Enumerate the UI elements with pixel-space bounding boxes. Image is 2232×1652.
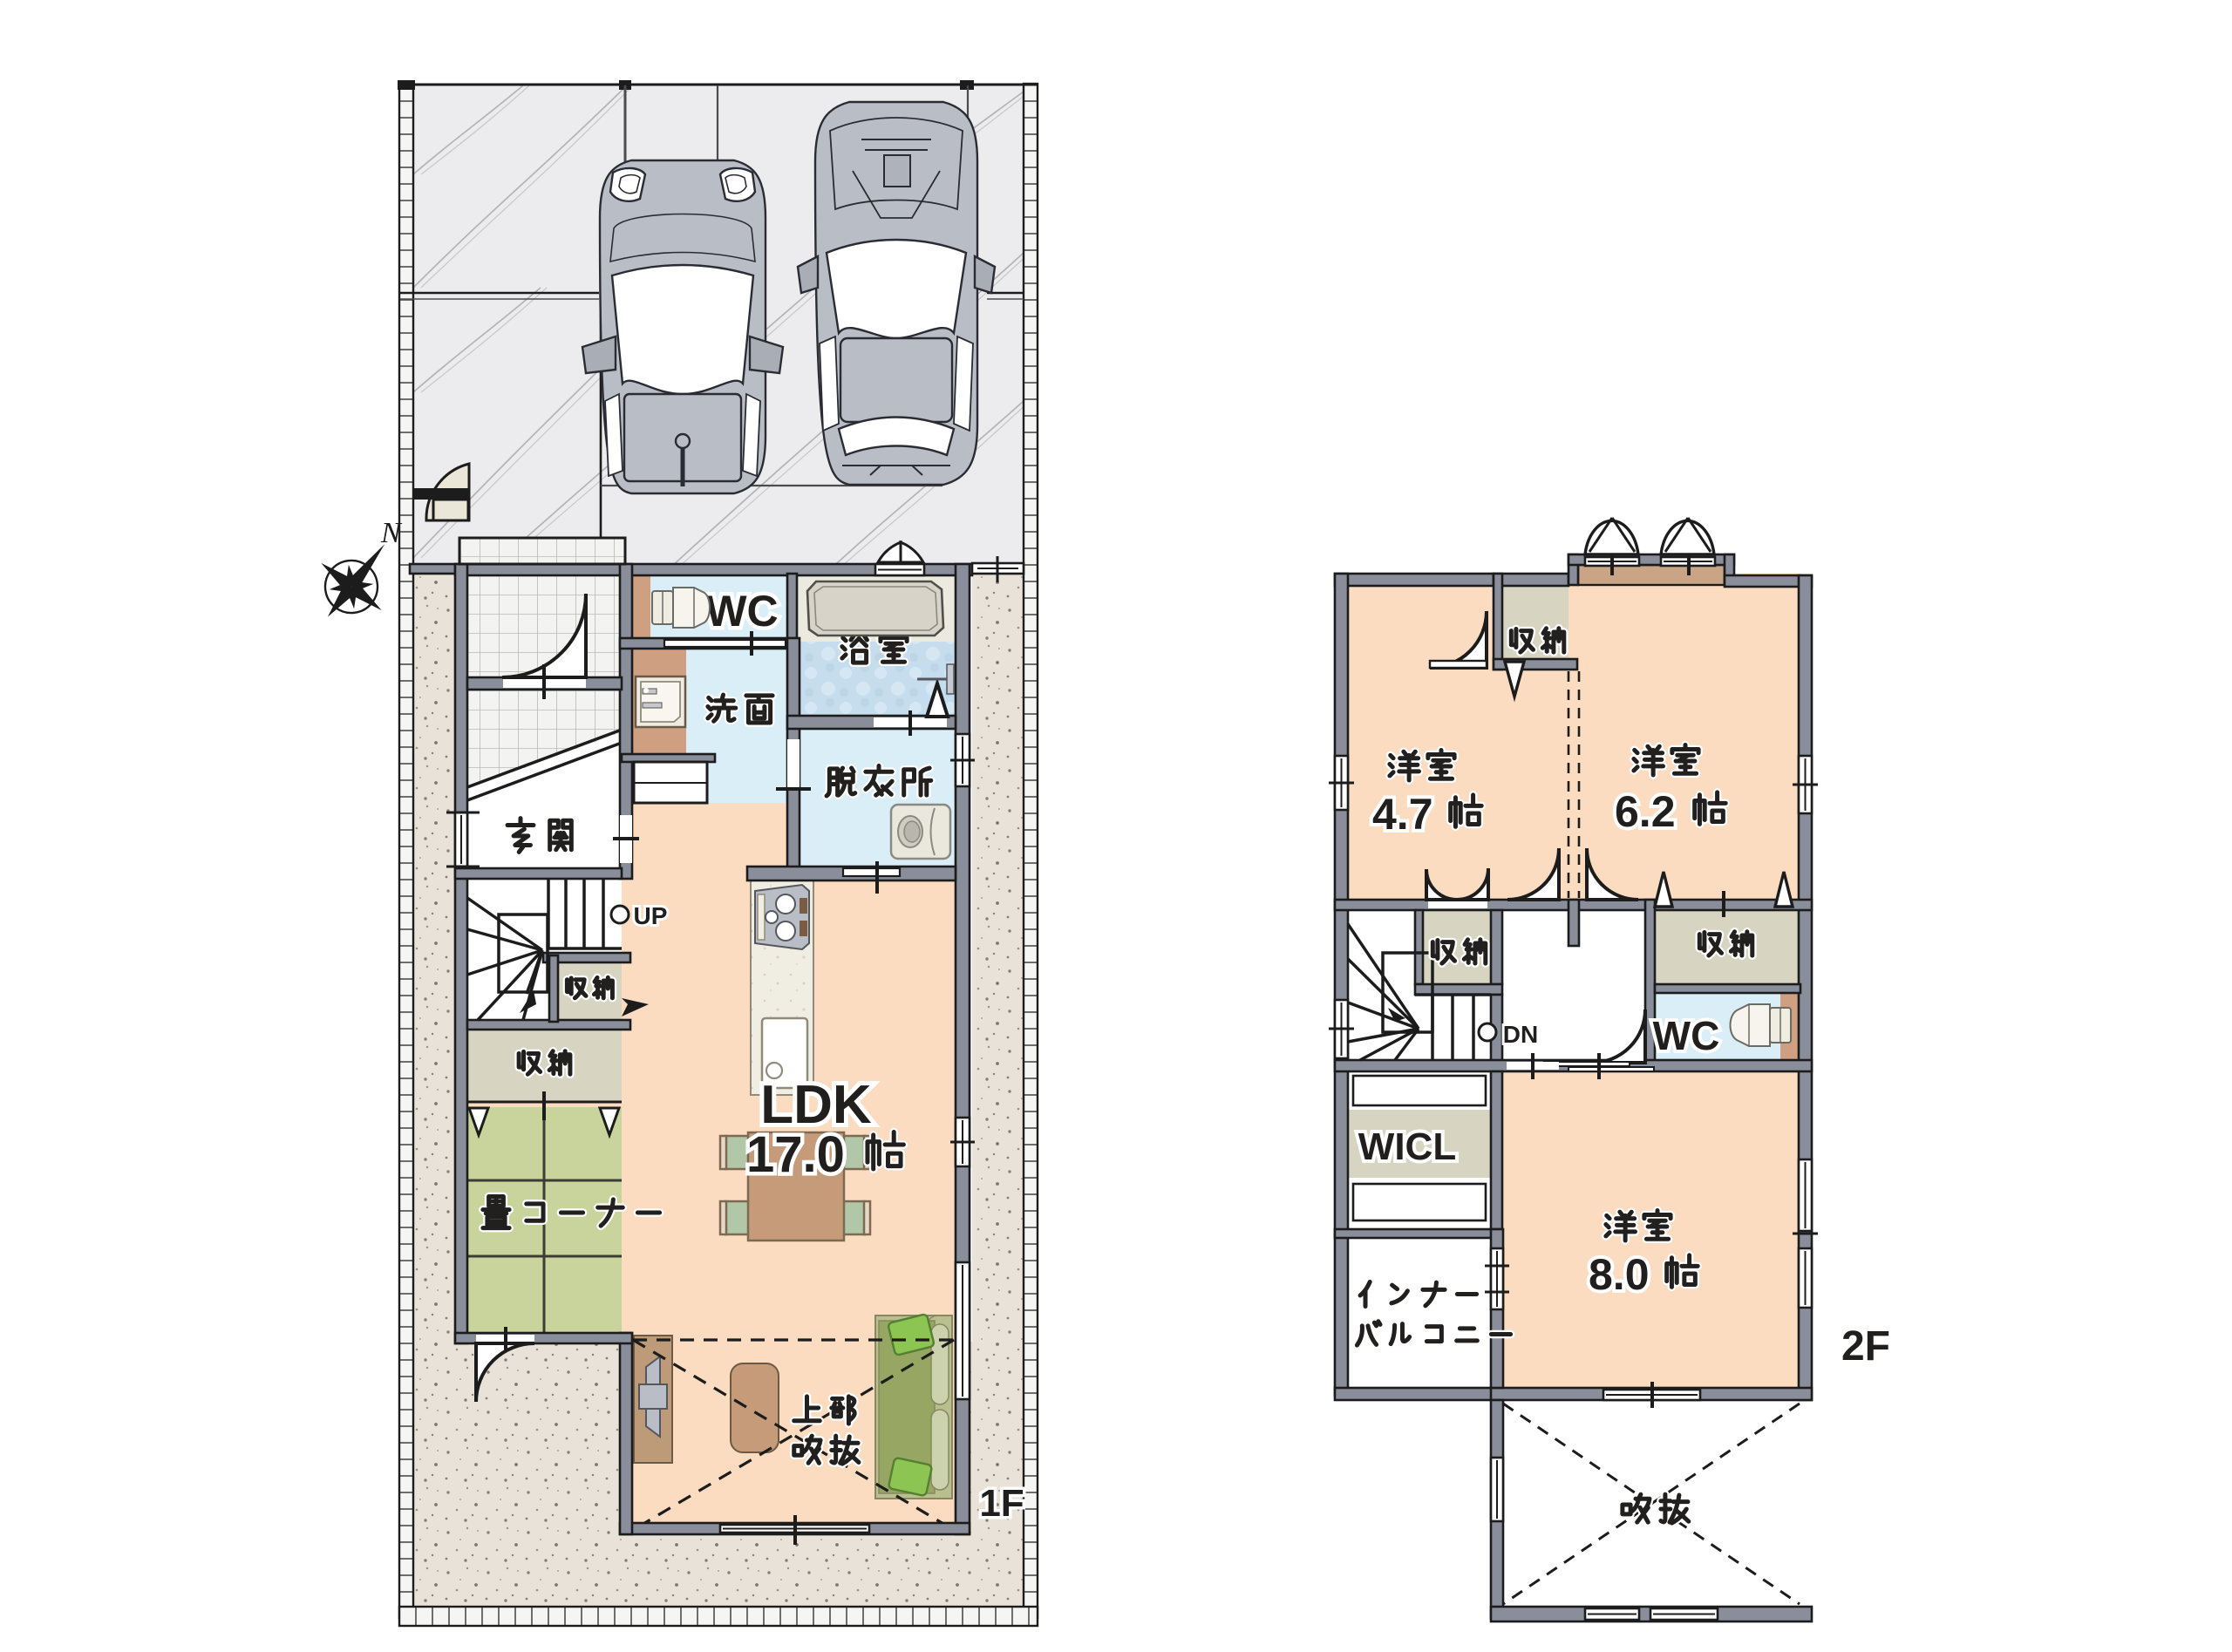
svg-text:2F: 2F [1841,1323,1890,1370]
svg-text:UP: UP [634,902,668,929]
svg-text:6.2: 6.2 [1615,787,1676,836]
svg-text:4.7: 4.7 [1372,790,1433,839]
svg-text:1F: 1F [979,1482,1024,1525]
svg-text:WICL: WICL [1358,1125,1456,1168]
svg-text:WC: WC [705,587,778,636]
svg-text:N: N [380,517,403,549]
svg-text:DN: DN [1503,1021,1538,1048]
svg-text:17.0: 17.0 [746,1126,845,1183]
svg-text:8.0: 8.0 [1589,1250,1650,1299]
svg-text:WC: WC [1653,1013,1720,1058]
